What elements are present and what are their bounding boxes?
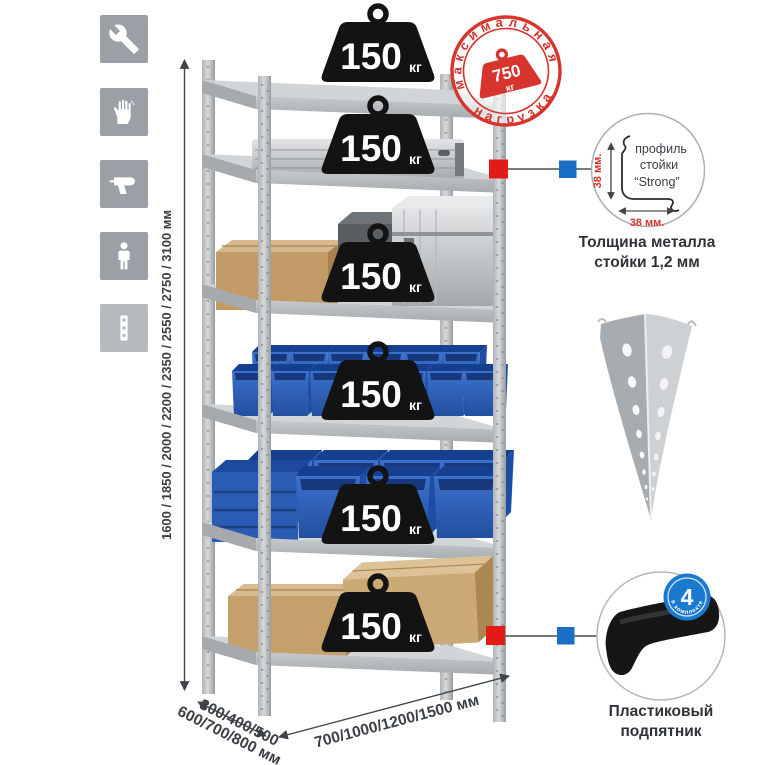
profile-callout	[489, 160, 591, 179]
height-dimension: 1600 / 1850 / 2000 / 2200 / 2350 / 2550 …	[159, 60, 185, 690]
weight-value: 150	[340, 498, 402, 539]
kit-badge: 4 в комплекте	[664, 574, 711, 621]
foot-callout	[486, 626, 597, 645]
post-front-left	[258, 76, 271, 716]
shelf-load-weight-1: 150 кг	[322, 6, 435, 82]
depth-dimension: 300/400/500 600/700/800 мм	[175, 689, 291, 765]
weight-unit: кг	[409, 629, 422, 645]
weight-ring	[370, 6, 386, 22]
weight-value: 150	[340, 606, 402, 647]
width-dimension: 700/1000/1200/1500 мм	[279, 676, 509, 752]
foot-caption-2: подпятник	[620, 723, 701, 740]
profile-dim-h-label: 38 мм.	[630, 217, 665, 229]
max-load-stamp: максимальная нагрузка 750 кг	[437, 2, 574, 139]
height-dimension-label: 1600 / 1850 / 2000 / 2200 / 2350 / 2550 …	[159, 210, 174, 540]
weight-unit: кг	[409, 397, 422, 413]
profile-caption-1: Толщина металла	[579, 234, 716, 251]
badge-value: 4	[681, 584, 694, 610]
marker-blue-bottom	[557, 627, 575, 645]
rack-illustration: 1600 / 1850 / 2000 / 2200 / 2350 / 2550 …	[0, 0, 765, 765]
profile-caption-2: стойки 1,2 мм	[594, 254, 699, 271]
marker-red-bottom	[486, 626, 505, 645]
foot-caption-1: Пластиковый	[609, 703, 714, 720]
profile-label-3: “Strong”	[634, 175, 679, 189]
foot-detail: 4 в комплекте Пластиковый подпятник	[597, 572, 725, 740]
profile-detail: 38 мм. 38 мм. профиль стойки “Strong” То…	[579, 114, 716, 272]
weight-unit: кг	[409, 151, 422, 167]
weight-value: 150	[340, 128, 402, 169]
weight-value: 150	[340, 36, 402, 77]
profile-label-1: профиль	[635, 142, 687, 156]
weight-value: 150	[340, 256, 402, 297]
weight-unit: кг	[409, 59, 422, 75]
marker-blue-top	[559, 161, 577, 179]
angle-post-image	[598, 314, 696, 520]
marker-red-top	[489, 160, 508, 179]
profile-label-2: стойки	[640, 158, 678, 172]
shelving-infographic: 1600 / 1850 / 2000 / 2200 / 2350 / 2550 …	[0, 0, 765, 765]
weight-unit: кг	[409, 521, 422, 537]
profile-dim-v-label: 38 мм.	[592, 154, 604, 189]
weight-unit: кг	[409, 279, 422, 295]
weight-value: 150	[340, 374, 402, 415]
